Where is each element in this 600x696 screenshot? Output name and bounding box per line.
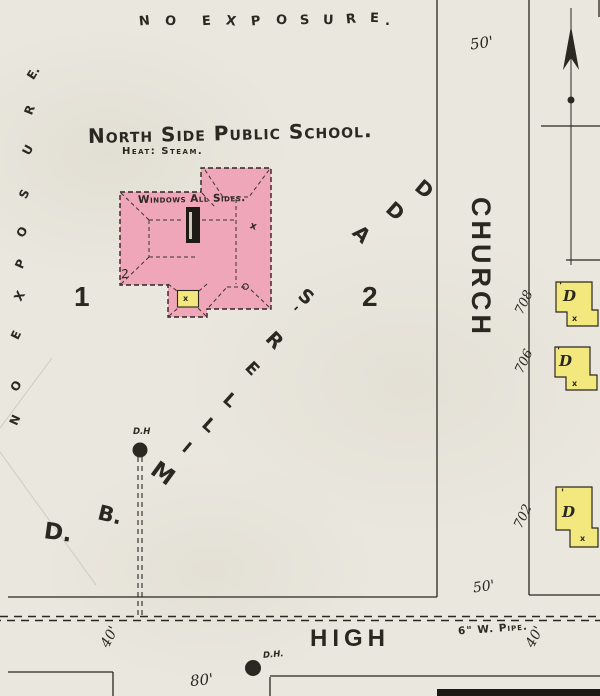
addition-name-letter: L xyxy=(218,389,241,412)
high-street-name: HIGH xyxy=(310,625,390,653)
hydrant-label-south: D.H. xyxy=(263,649,284,661)
dwelling-702-attic-tick: ' xyxy=(561,488,564,499)
dwelling-702-x-mark: x xyxy=(580,534,585,543)
hydrant-label-north: D.H xyxy=(133,427,150,437)
dwelling-708-label: D xyxy=(563,287,576,305)
addition-name-letter: L xyxy=(197,414,220,437)
lot-frontage-label: 80' xyxy=(189,670,214,690)
church-street-name: CHURCH xyxy=(462,197,496,321)
church-width-south: 50' xyxy=(472,578,496,597)
addition-name-letter: D xyxy=(410,174,438,203)
addition-name: D.B.MILLER'SADD xyxy=(0,0,600,696)
dwelling-706-label: D xyxy=(559,352,572,370)
lot-number-2: 2 xyxy=(362,281,378,313)
porch-x-mark: x xyxy=(183,294,188,303)
addition-name-letter: A xyxy=(348,220,376,248)
addition-name-letter: B. xyxy=(95,500,124,529)
dwelling-706-attic-tick: ' xyxy=(557,346,560,357)
lot-number-1: 1 xyxy=(74,281,90,313)
dwelling-708-x-mark: x xyxy=(572,314,577,323)
windows-note-label: Windows All Sides. xyxy=(138,192,246,206)
addition-name-letter: D. xyxy=(42,518,73,548)
heat-note-label: Heat: Steam. xyxy=(122,146,203,157)
addition-name-letter: M xyxy=(146,457,180,491)
addition-name-letter: E xyxy=(241,358,263,380)
addition-name-letter: I xyxy=(179,438,196,456)
sanborn-map-sheet: NOEXPOSURE. E.RUSOPXEON D.B.MILLER'SADD … xyxy=(0,0,600,696)
addition-name-letter: D xyxy=(381,197,409,226)
dwelling-706-x-mark: x xyxy=(572,379,577,388)
church-width-north: 50' xyxy=(469,32,494,53)
dwelling-702-label: D xyxy=(562,503,575,521)
addition-name-letter: R xyxy=(261,326,289,354)
dwelling-708-attic-tick: ' xyxy=(559,281,562,292)
